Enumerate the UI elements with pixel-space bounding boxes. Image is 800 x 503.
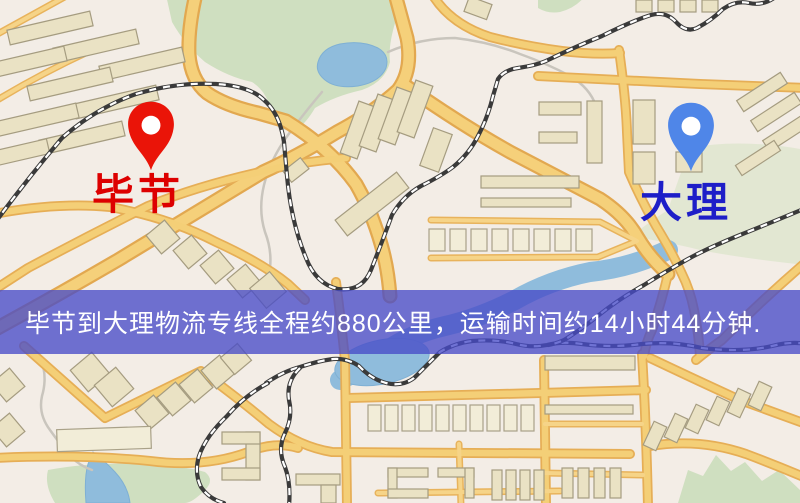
destination-pin-icon	[663, 101, 719, 173]
origin-label: 毕节	[92, 174, 184, 216]
map-graphics	[0, 0, 800, 503]
route-info-banner: 毕节到大理物流专线全程约880公里，运输时间约14小时44分钟.	[0, 290, 800, 354]
route-info-text: 毕节到大理物流专线全程约880公里，运输时间约14小时44分钟.	[25, 304, 761, 340]
origin-pin-icon	[122, 100, 180, 172]
destination-label: 大理	[640, 182, 732, 224]
map-canvas: 毕节 大理 毕节到大理物流专线全程约880公里，运输时间约14小时44分钟.	[0, 0, 800, 503]
